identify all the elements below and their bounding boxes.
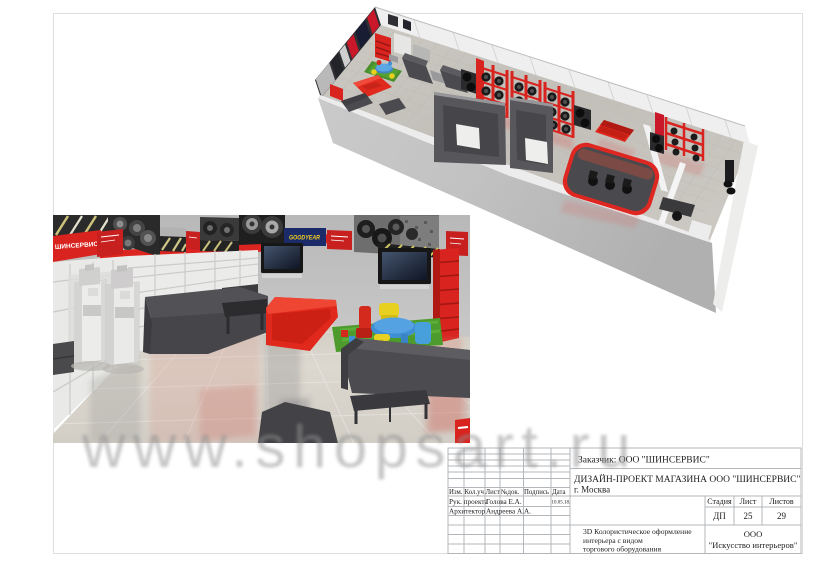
svg-text:25: 25 [744, 511, 754, 521]
svg-text:Архитектор: Архитектор [449, 508, 486, 516]
svg-text:3D Колористическое оформление: 3D Колористическое оформление [583, 527, 692, 536]
svg-text:Андреева А.А.: Андреева А.А. [486, 508, 531, 516]
svg-text:Лист: Лист [740, 497, 757, 506]
svg-text:10.05.18.: 10.05.18. [552, 501, 571, 506]
svg-text:Кол.уч: Кол.уч [465, 489, 485, 496]
svg-text:№док.: №док. [501, 489, 520, 496]
svg-text:Подпись: Подпись [524, 489, 549, 496]
svg-text:"Искусство интерьеров": "Искусство интерьеров" [709, 540, 798, 550]
svg-text:Голова Е.А.: Голова Е.А. [486, 498, 522, 506]
svg-text:ООО: ООО [744, 529, 763, 539]
svg-text:Лист: Лист [486, 489, 500, 496]
svg-text:29: 29 [777, 511, 787, 521]
svg-text:г. Москва: г. Москва [574, 485, 610, 495]
svg-text:Листов: Листов [769, 497, 794, 506]
svg-text:ДП: ДП [713, 511, 726, 521]
svg-text:Изм.: Изм. [449, 489, 463, 496]
svg-text:торгового оборудования: торгового оборудования [583, 545, 662, 554]
svg-text:Рук. проекта: Рук. проекта [449, 498, 489, 506]
svg-text:Стадия: Стадия [707, 497, 732, 506]
svg-text:Дата: Дата [552, 489, 566, 496]
